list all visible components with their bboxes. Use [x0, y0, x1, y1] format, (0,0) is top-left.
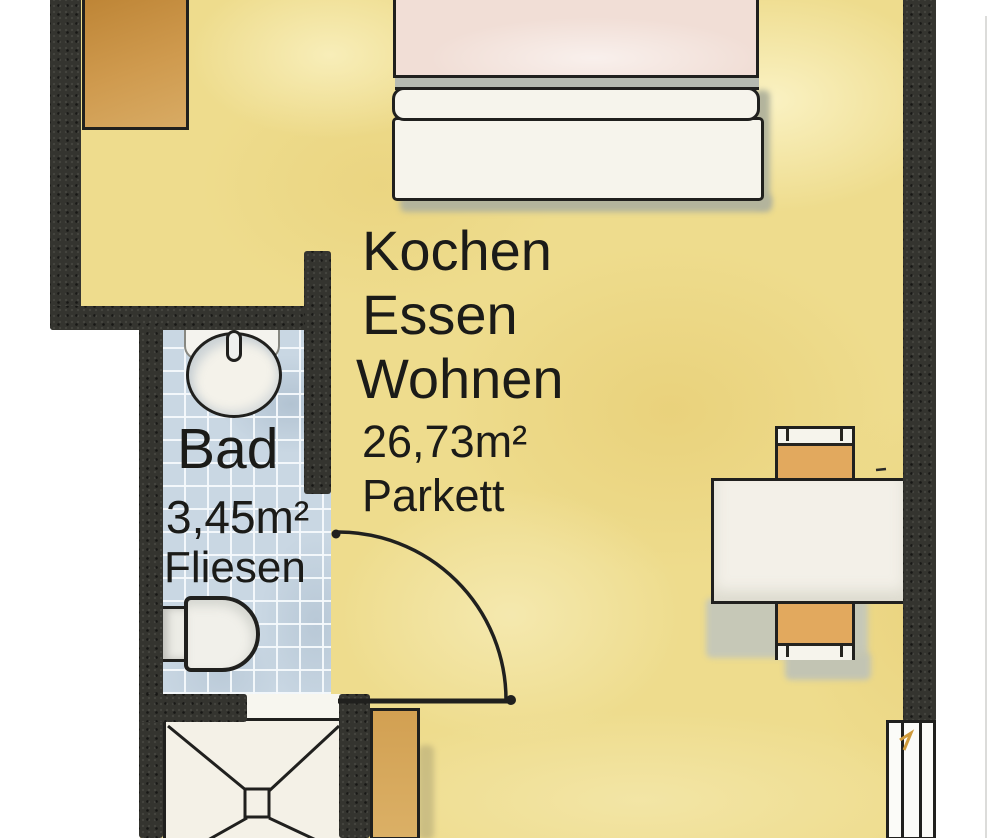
bed-footboard [392, 117, 764, 201]
bed-mattress [393, 0, 759, 78]
window-frame-line [919, 723, 922, 837]
window-frame-line [901, 723, 904, 837]
wall-step-horizontal [50, 306, 331, 330]
toilet-bowl [184, 596, 260, 672]
wall-left [50, 0, 81, 330]
chair-bottom [775, 600, 855, 660]
scan-edge-line [985, 16, 987, 838]
main-room-label-line1: Kochen [362, 223, 552, 279]
bathroom-area: 3,45m² [166, 494, 309, 540]
bathroom-name: Bad [177, 421, 278, 478]
outside-area-right [935, 0, 991, 838]
wall-bath-bottom [139, 694, 247, 722]
wardrobe [82, 0, 189, 130]
main-room-label-line3: Wohnen [356, 351, 564, 407]
bed-footboard-roll [392, 87, 760, 121]
main-room-flooring: Parkett [362, 473, 505, 518]
bathroom-flooring: Fliesen [164, 546, 306, 590]
shower-tray [163, 718, 345, 838]
chair-post [786, 429, 789, 441]
kitchen-unit [370, 708, 420, 838]
balcony-window [886, 720, 936, 838]
tap-icon [226, 330, 242, 362]
chair-top [775, 426, 855, 484]
main-room-area: 26,73m² [362, 419, 527, 464]
wall-bath-left [139, 324, 163, 838]
chair-post [840, 429, 843, 441]
dining-table [711, 478, 908, 604]
wall-stub-bottom [339, 694, 370, 838]
kitchen-unit-shadow [418, 745, 434, 838]
outside-area-left [0, 330, 140, 838]
main-room-label-line2: Essen [362, 287, 518, 343]
chair-post [786, 645, 789, 657]
wall-bath-partition [304, 251, 331, 494]
floor-plan: Kochen Essen Wohnen 26,73m² Parkett Bad … [0, 0, 991, 838]
wall-right [903, 0, 936, 722]
chair-post [840, 645, 843, 657]
